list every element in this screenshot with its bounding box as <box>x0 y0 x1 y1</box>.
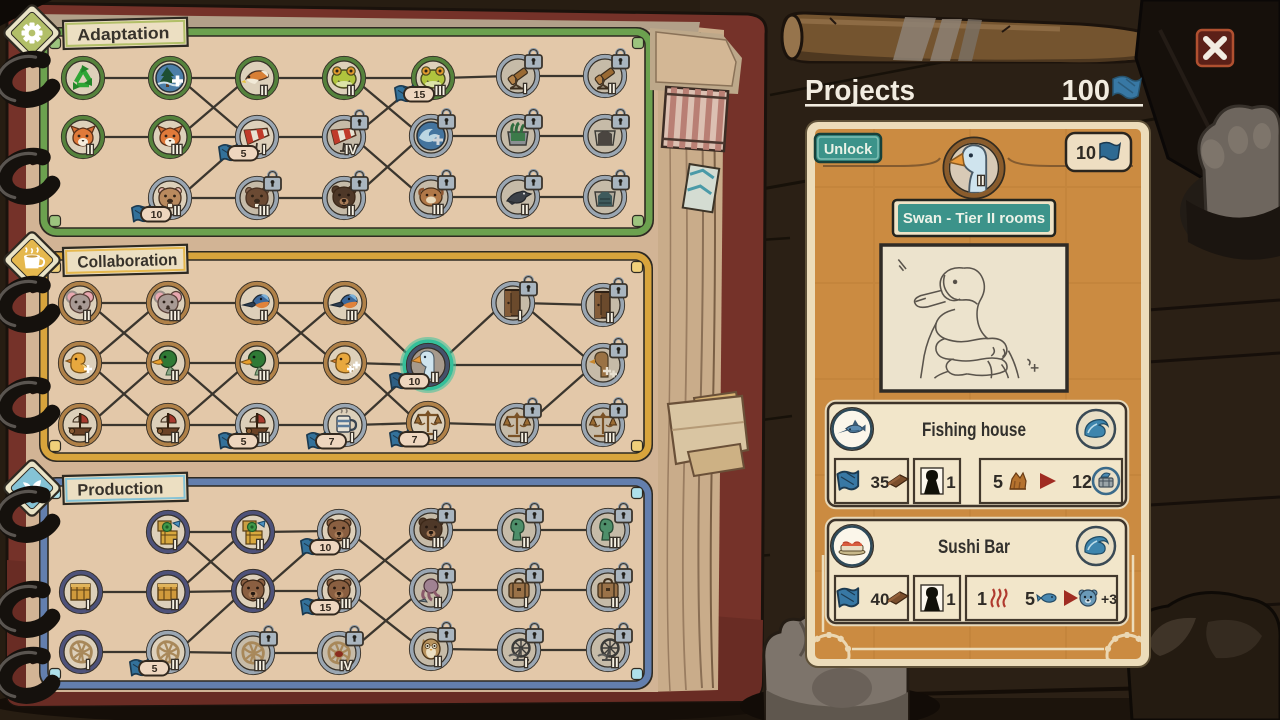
svg-text:II: II <box>86 142 93 157</box>
svg-text:I: I <box>262 142 266 157</box>
svg-text:Production: Production <box>77 479 163 499</box>
svg-text:III: III <box>433 202 444 217</box>
svg-text:II: II <box>520 430 527 445</box>
svg-text:II: II <box>256 596 263 611</box>
svg-text:I: I <box>524 655 528 670</box>
svg-text:5: 5 <box>241 148 247 160</box>
svg-text:III: III <box>610 535 621 550</box>
svg-text:I: I <box>523 81 527 96</box>
svg-text:II: II <box>347 203 354 218</box>
svg-text:III: III <box>435 83 446 98</box>
svg-text:5: 5 <box>152 663 158 675</box>
svg-text:II: II <box>606 310 613 325</box>
svg-text:I: I <box>85 430 89 445</box>
svg-text:7: 7 <box>412 434 418 446</box>
svg-text:7: 7 <box>329 436 335 448</box>
svg-text:III: III <box>341 596 352 611</box>
svg-text:I: I <box>86 657 90 672</box>
svg-text:35: 35 <box>871 473 890 492</box>
svg-text:Swan - Tier II rooms: Swan - Tier II rooms <box>903 210 1045 227</box>
svg-text:II: II <box>608 81 615 96</box>
svg-text:III: III <box>605 430 616 445</box>
svg-text:Unlock: Unlock <box>824 142 873 158</box>
svg-text:Adaptation: Adaptation <box>77 24 169 44</box>
svg-text:III: III <box>259 430 270 445</box>
svg-text:I: I <box>518 308 522 323</box>
svg-text:15: 15 <box>414 89 426 101</box>
svg-text:Collaboration: Collaboration <box>77 251 177 272</box>
svg-text:5: 5 <box>1025 589 1035 609</box>
svg-text:II: II <box>171 597 178 612</box>
svg-text:1: 1 <box>977 589 987 609</box>
svg-text:1: 1 <box>946 473 955 492</box>
svg-text:II: II <box>171 368 178 383</box>
svg-text:12: 12 <box>1072 472 1092 492</box>
svg-text:II: II <box>260 308 267 323</box>
svg-text:III: III <box>170 308 181 323</box>
svg-text:Sushi Bar: Sushi Bar <box>938 537 1010 558</box>
svg-text:Fishing house: Fishing house <box>922 420 1026 441</box>
svg-text:100: 100 <box>1062 75 1110 107</box>
svg-text:Projects: Projects <box>805 75 915 107</box>
svg-text:III: III <box>259 368 270 383</box>
svg-text:III: III <box>347 308 358 323</box>
svg-text:5: 5 <box>241 436 247 448</box>
svg-text:II: II <box>522 535 529 550</box>
svg-text:II: II <box>611 595 618 610</box>
svg-text:1: 1 <box>946 590 955 609</box>
svg-text:II: II <box>347 83 354 98</box>
svg-text:I: I <box>350 430 354 445</box>
svg-text:II: II <box>171 430 178 445</box>
svg-text:III: III <box>255 658 266 673</box>
svg-text:10: 10 <box>151 209 163 221</box>
svg-text:II: II <box>977 173 984 188</box>
svg-text:II: II <box>431 370 438 385</box>
svg-text:15: 15 <box>320 602 332 614</box>
svg-text:I: I <box>86 597 90 612</box>
svg-text:IV: IV <box>345 142 358 157</box>
svg-text:I: I <box>524 595 528 610</box>
svg-text:II: II <box>83 308 90 323</box>
svg-text:+3: +3 <box>1101 591 1117 607</box>
svg-text:5: 5 <box>993 472 1003 492</box>
svg-text:10: 10 <box>320 542 332 554</box>
svg-text:III: III <box>259 203 270 218</box>
svg-text:I: I <box>433 428 437 443</box>
svg-text:II: II <box>521 202 528 217</box>
svg-text:II: II <box>256 537 263 552</box>
svg-text:10: 10 <box>1076 143 1096 163</box>
svg-text:10: 10 <box>409 376 421 388</box>
svg-text:II: II <box>434 595 441 610</box>
svg-text:II: II <box>260 83 267 98</box>
svg-text:IV: IV <box>340 658 353 673</box>
svg-text:II: II <box>342 536 349 551</box>
svg-text:III: III <box>433 535 444 550</box>
svg-text:I: I <box>173 537 177 552</box>
svg-text:II: II <box>434 654 441 669</box>
svg-text:II: II <box>171 657 178 672</box>
svg-text:40: 40 <box>871 590 890 609</box>
svg-text:II: II <box>173 203 180 218</box>
svg-text:III: III <box>172 142 183 157</box>
svg-text:II: II <box>611 655 618 670</box>
